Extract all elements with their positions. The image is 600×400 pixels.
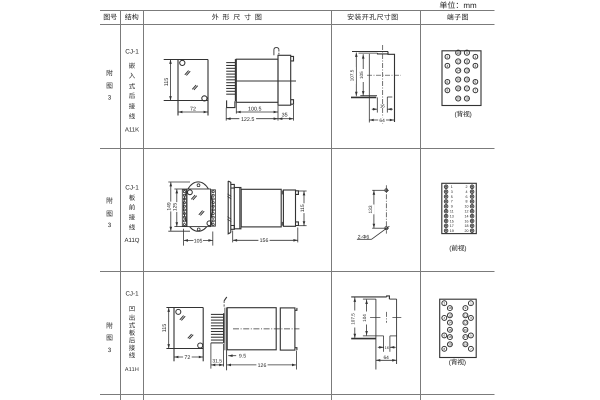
- svg-text:16: 16: [380, 103, 385, 108]
- svg-text:出: 出: [129, 314, 136, 322]
- svg-text:115: 115: [162, 324, 168, 333]
- svg-text:5: 5: [451, 195, 453, 199]
- svg-text:72: 72: [184, 355, 190, 361]
- svg-text:A11K: A11K: [125, 126, 139, 133]
- svg-text:10: 10: [456, 51, 460, 55]
- svg-text:20: 20: [456, 97, 460, 101]
- svg-text:图: 图: [106, 82, 113, 90]
- svg-text:单位：mm: 单位：mm: [439, 1, 477, 10]
- svg-text:附: 附: [106, 70, 113, 78]
- svg-text:10: 10: [448, 306, 452, 310]
- svg-text:19: 19: [450, 229, 454, 233]
- svg-text:图: 图: [106, 334, 113, 342]
- svg-text:15: 15: [464, 328, 468, 332]
- svg-text:A11Q: A11Q: [125, 237, 140, 244]
- svg-text:104: 104: [362, 314, 367, 322]
- svg-text:19: 19: [464, 342, 468, 346]
- svg-text:线: 线: [129, 352, 136, 360]
- svg-text:6: 6: [466, 195, 468, 199]
- svg-text:8: 8: [466, 200, 468, 204]
- svg-text:6: 6: [447, 80, 449, 84]
- svg-text:64: 64: [384, 355, 390, 361]
- svg-text:16: 16: [448, 328, 452, 332]
- svg-text:31.5: 31.5: [212, 359, 222, 365]
- svg-text:端子图: 端子图: [447, 14, 469, 22]
- svg-text:A11H: A11H: [125, 367, 139, 373]
- svg-text:13: 13: [464, 321, 468, 325]
- svg-text:18: 18: [456, 87, 460, 91]
- svg-text:19: 19: [465, 97, 469, 101]
- svg-text:8: 8: [447, 89, 449, 93]
- svg-text:前: 前: [129, 203, 136, 211]
- svg-text:12: 12: [456, 60, 460, 64]
- svg-text:64: 64: [379, 118, 385, 124]
- svg-text:外 形 尺 寸 图: 外 形 尺 寸 图: [212, 14, 262, 22]
- svg-text:4: 4: [466, 190, 468, 194]
- svg-text:11: 11: [450, 210, 454, 214]
- svg-text:133: 133: [368, 205, 374, 213]
- svg-text:线: 线: [129, 223, 136, 231]
- svg-text:1: 1: [451, 185, 453, 189]
- svg-text:105: 105: [194, 238, 203, 244]
- svg-text:3: 3: [108, 222, 112, 229]
- svg-text:入: 入: [129, 72, 136, 80]
- svg-text:16: 16: [456, 78, 460, 82]
- svg-text:12: 12: [448, 313, 452, 317]
- svg-text:126: 126: [258, 363, 267, 369]
- svg-text:20: 20: [448, 342, 452, 346]
- svg-text:3: 3: [108, 95, 112, 102]
- svg-text:105: 105: [359, 71, 364, 79]
- svg-text:115: 115: [300, 204, 306, 212]
- svg-text:17: 17: [450, 224, 454, 228]
- svg-text:7: 7: [475, 89, 477, 93]
- svg-text:CJ-1: CJ-1: [125, 290, 139, 297]
- svg-text:107.5: 107.5: [349, 69, 354, 81]
- svg-text:18: 18: [465, 224, 469, 228]
- svg-text:4: 4: [447, 64, 449, 68]
- svg-text:图号: 图号: [103, 14, 117, 22]
- svg-text:3: 3: [451, 190, 453, 194]
- svg-text:107.5: 107.5: [350, 313, 355, 325]
- svg-text:7: 7: [451, 200, 453, 204]
- svg-text:14: 14: [456, 69, 460, 73]
- svg-text:附: 附: [106, 322, 113, 330]
- svg-text:9: 9: [466, 51, 468, 55]
- svg-text:16: 16: [465, 219, 469, 223]
- svg-text:CJ-1: CJ-1: [125, 49, 139, 56]
- svg-text:3: 3: [108, 347, 112, 354]
- svg-text:5: 5: [475, 80, 477, 84]
- svg-text:15: 15: [450, 219, 454, 223]
- svg-text:14: 14: [448, 321, 452, 325]
- svg-text:13: 13: [465, 69, 469, 73]
- svg-text:11: 11: [464, 313, 467, 317]
- svg-text:10: 10: [465, 205, 469, 209]
- svg-text:100.5: 100.5: [248, 107, 262, 113]
- svg-text:156: 156: [260, 238, 269, 244]
- svg-text:安装开孔尺寸图: 安装开孔尺寸图: [347, 14, 398, 22]
- svg-text:125: 125: [173, 203, 179, 212]
- svg-text:115: 115: [164, 78, 170, 87]
- svg-text:式: 式: [129, 321, 136, 329]
- svg-text:附: 附: [106, 197, 113, 205]
- svg-text:122.5: 122.5: [241, 117, 255, 123]
- svg-text:嵌: 嵌: [129, 62, 136, 70]
- svg-text:结构: 结构: [125, 14, 139, 22]
- svg-text:凹: 凹: [129, 306, 136, 313]
- svg-text:图: 图: [106, 210, 113, 218]
- svg-text:接: 接: [129, 102, 136, 110]
- svg-text:板: 板: [129, 329, 136, 337]
- svg-text:17: 17: [464, 335, 468, 339]
- svg-text:12: 12: [465, 210, 469, 214]
- svg-text:13: 13: [450, 214, 454, 218]
- svg-text:3: 3: [475, 64, 477, 68]
- svg-text:18: 18: [448, 335, 452, 339]
- svg-text:17: 17: [465, 87, 469, 91]
- svg-text:CJ-1: CJ-1: [125, 184, 139, 191]
- svg-text:接: 接: [129, 214, 136, 222]
- svg-text:板: 板: [129, 194, 136, 202]
- svg-text:后: 后: [129, 336, 136, 344]
- svg-text:(前视): (前视): [449, 245, 466, 253]
- svg-text:(背视): (背视): [455, 111, 472, 119]
- svg-text:线: 线: [129, 112, 136, 120]
- svg-text:11: 11: [465, 60, 469, 64]
- svg-text:16: 16: [385, 346, 389, 350]
- svg-text:72: 72: [190, 107, 196, 113]
- svg-text:15: 15: [465, 78, 469, 82]
- svg-text:1: 1: [475, 55, 477, 59]
- svg-text:2: 2: [466, 185, 468, 189]
- svg-text:后: 后: [129, 92, 136, 100]
- svg-text:(背视): (背视): [449, 359, 466, 367]
- svg-text:9.5: 9.5: [239, 354, 246, 360]
- svg-text:式: 式: [129, 83, 136, 91]
- svg-text:20: 20: [465, 229, 469, 233]
- svg-text:14: 14: [465, 214, 469, 218]
- svg-text:2: 2: [447, 55, 449, 59]
- svg-text:35: 35: [282, 113, 288, 119]
- svg-text:接: 接: [129, 344, 136, 352]
- svg-text:9: 9: [451, 205, 453, 209]
